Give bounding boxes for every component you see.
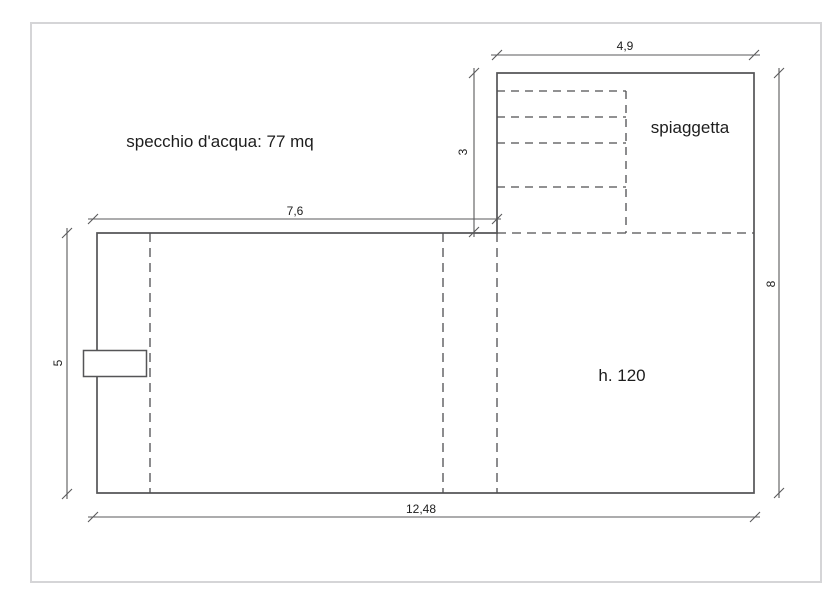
water-area-label: specchio d'acqua: 77 mq bbox=[126, 132, 314, 152]
dim-label-beach-width: 4,9 bbox=[617, 39, 634, 53]
skimmer-box bbox=[84, 351, 147, 377]
spiaggetta-steps bbox=[497, 91, 626, 233]
depth-label: h. 120 bbox=[598, 366, 645, 386]
dim-label-pool-inner-width: 7,6 bbox=[287, 204, 304, 218]
dim-label-beach-depth: 3 bbox=[456, 149, 470, 156]
dim-label-overall-right-height: 8 bbox=[764, 281, 778, 288]
dim-label-pool-left-height: 5 bbox=[51, 360, 65, 367]
screenshot-canvas: specchio d'acqua: 77 mq spiaggetta h. 12… bbox=[0, 0, 839, 614]
dim-label-overall-width: 12,48 bbox=[406, 502, 436, 516]
dimension-beach-depth bbox=[469, 68, 479, 237]
pool-plan-drawing bbox=[0, 0, 839, 614]
beach-label: spiaggetta bbox=[651, 118, 729, 138]
